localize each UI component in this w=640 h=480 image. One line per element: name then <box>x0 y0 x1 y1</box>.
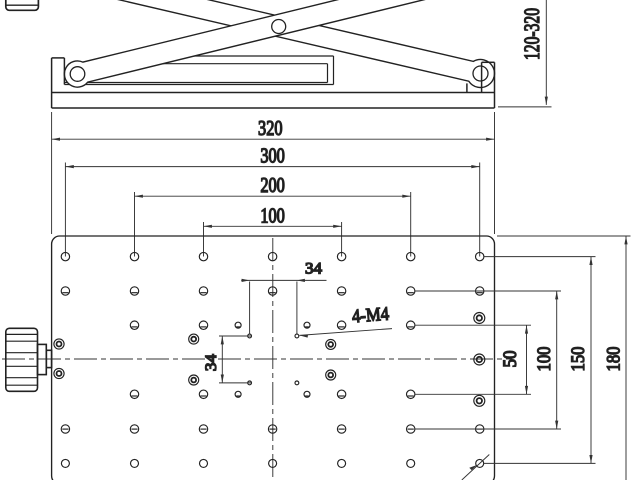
svg-text:34: 34 <box>203 354 220 371</box>
svg-text:100: 100 <box>260 203 285 227</box>
svg-text:300: 300 <box>260 144 285 168</box>
svg-text:50: 50 <box>500 351 521 368</box>
svg-text:34: 34 <box>305 260 322 277</box>
svg-text:200: 200 <box>260 173 285 197</box>
svg-text:120-320: 120-320 <box>519 8 544 60</box>
svg-text:150: 150 <box>568 347 589 372</box>
svg-text:180: 180 <box>603 347 624 372</box>
svg-text:320: 320 <box>258 116 283 140</box>
svg-text:100: 100 <box>534 347 555 372</box>
svg-text:4-M4: 4-M4 <box>351 304 390 328</box>
